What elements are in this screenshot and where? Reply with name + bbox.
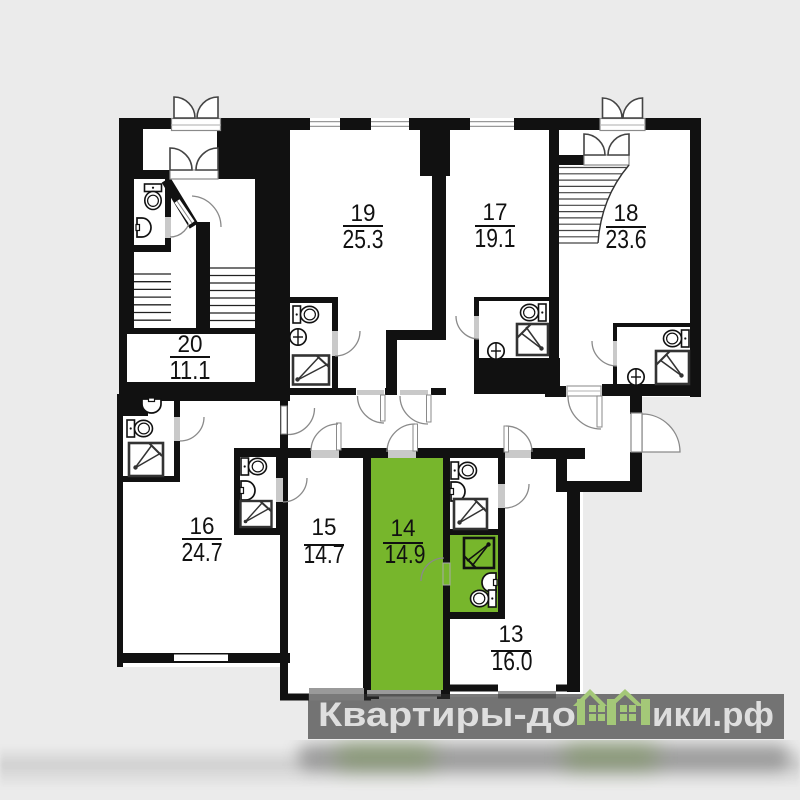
svg-text:19: 19 [351, 200, 376, 227]
svg-text:15: 15 [312, 514, 337, 541]
svg-text:14.9: 14.9 [385, 539, 426, 569]
svg-text:14: 14 [391, 515, 416, 542]
svg-text:19.1: 19.1 [475, 223, 516, 253]
svg-text:16.0: 16.0 [492, 646, 533, 676]
svg-text:17: 17 [483, 199, 508, 226]
svg-text:Квартиры-до: Квартиры-до [318, 696, 576, 734]
svg-text:18: 18 [614, 200, 639, 227]
svg-text:24.7: 24.7 [182, 537, 223, 567]
svg-text:ики.рф: ики.рф [652, 696, 774, 734]
svg-text:13: 13 [499, 621, 524, 648]
svg-text:11.1: 11.1 [170, 355, 211, 385]
svg-text:20: 20 [178, 331, 203, 358]
svg-text:23.6: 23.6 [606, 224, 647, 254]
svg-text:25.3: 25.3 [343, 224, 384, 254]
svg-text:16: 16 [190, 513, 215, 540]
svg-text:14.7: 14.7 [304, 539, 345, 569]
